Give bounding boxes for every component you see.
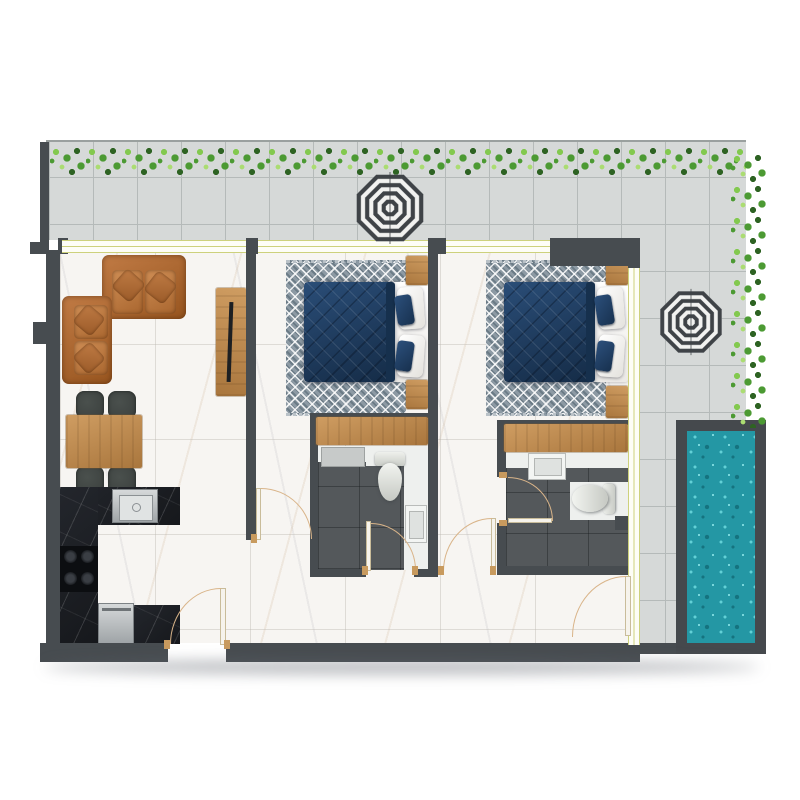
door-jamb bbox=[362, 566, 368, 575]
plan-drop-shadow bbox=[44, 660, 760, 674]
cooktop-burner bbox=[81, 550, 94, 563]
bedroom2-window bbox=[446, 240, 550, 253]
bathroom1-shower-shelf bbox=[321, 447, 365, 467]
bathroom1-sink bbox=[405, 505, 427, 543]
dishwasher-handle bbox=[102, 608, 131, 611]
bedroom1-duvet bbox=[304, 282, 394, 382]
sofa-two-seater-top bbox=[102, 255, 186, 319]
bathroom2-vanity bbox=[504, 424, 628, 452]
sink-basin bbox=[534, 458, 562, 476]
cooktop bbox=[60, 546, 98, 592]
umbrella-icon bbox=[352, 170, 428, 246]
sofa-two-seater-left bbox=[62, 296, 112, 384]
dishwasher bbox=[98, 603, 134, 644]
wall-terrace-west bbox=[40, 142, 49, 254]
bathroom2-toilet bbox=[572, 483, 616, 515]
hedge-right bbox=[731, 152, 766, 428]
cooktop-burner bbox=[64, 550, 77, 563]
bathroom1-vanity bbox=[316, 417, 428, 445]
cooktop-burner bbox=[64, 572, 77, 585]
bedroom1-nightstand bbox=[406, 380, 428, 409]
toilet-bowl bbox=[572, 485, 608, 512]
wall-bathroom2-south bbox=[497, 566, 628, 575]
floor-plan-canvas bbox=[0, 0, 800, 800]
bedroom2-duvet bbox=[504, 282, 594, 382]
toilet-bowl bbox=[378, 463, 402, 501]
kitchen-sink-drain bbox=[132, 503, 141, 512]
wall-bathroom1-south-a bbox=[310, 569, 366, 577]
bedroom1-nightstand bbox=[406, 256, 428, 285]
wall-east-corner bbox=[628, 238, 640, 268]
door-jamb bbox=[412, 566, 418, 575]
door-jamb bbox=[438, 566, 444, 575]
door-jamb bbox=[499, 472, 507, 478]
door-jamb bbox=[251, 534, 257, 543]
sink-basin bbox=[409, 511, 424, 539]
wall-west bbox=[46, 250, 60, 643]
door-jamb bbox=[164, 640, 170, 649]
bathroom2-sink bbox=[528, 453, 566, 480]
kitchen-sink bbox=[112, 489, 158, 523]
living-room-window bbox=[62, 240, 246, 253]
door-jamb bbox=[490, 566, 496, 575]
bedroom2-nightstand bbox=[606, 386, 628, 418]
cooktop-burner bbox=[81, 572, 94, 585]
pool-water bbox=[687, 431, 755, 643]
wall-living-bedroom1 bbox=[246, 250, 256, 540]
bathroom2-wall-band bbox=[506, 452, 628, 468]
dining-table bbox=[66, 415, 142, 468]
umbrella-icon bbox=[656, 287, 726, 357]
wall-bottom-left bbox=[40, 643, 168, 662]
wall-west-tab bbox=[33, 322, 46, 344]
bathroom1-toilet bbox=[374, 452, 406, 504]
wall-bathroom2-west-b bbox=[497, 523, 506, 570]
door-jamb bbox=[224, 640, 230, 649]
wall-north-d bbox=[550, 238, 640, 266]
wall-east-chunk bbox=[615, 516, 629, 530]
door-jamb bbox=[499, 520, 507, 526]
